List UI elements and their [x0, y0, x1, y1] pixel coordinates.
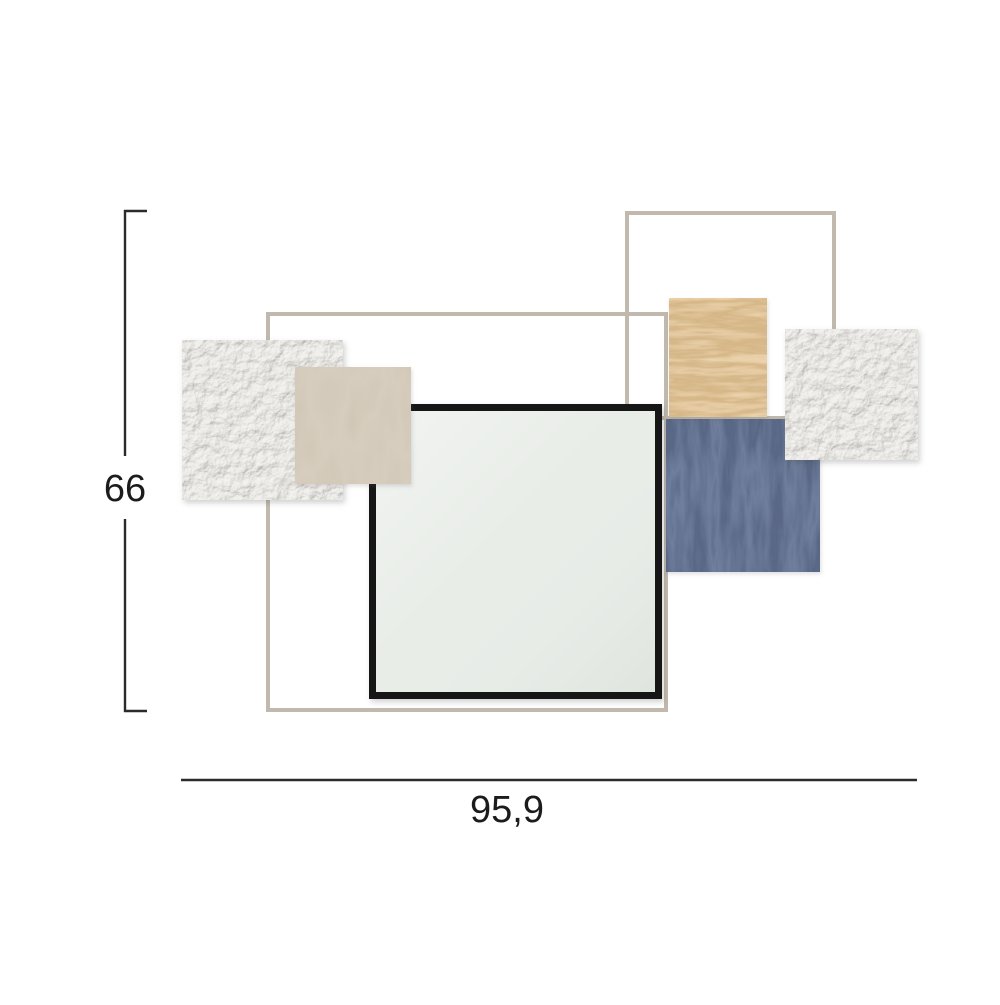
mirror	[369, 404, 662, 699]
wood-square-texture	[669, 298, 767, 417]
wall-art-dimension-diagram: 66 95,9	[0, 0, 1000, 1000]
width-dimension-label: 95,9	[470, 789, 544, 831]
wood-square	[669, 298, 767, 417]
product-dimension-page: 66 95,9	[0, 0, 1000, 1000]
plaster-square-right	[785, 329, 918, 460]
beige-square	[295, 367, 411, 484]
width-dimension: 95,9	[181, 780, 917, 831]
plaster-square-right-texture	[785, 329, 918, 460]
beige-square-texture	[295, 367, 411, 484]
height-dimension: 66	[104, 210, 147, 712]
mirror-glass-sheen	[376, 411, 655, 692]
wall-art	[182, 213, 918, 710]
height-dimension-label: 66	[104, 468, 146, 510]
